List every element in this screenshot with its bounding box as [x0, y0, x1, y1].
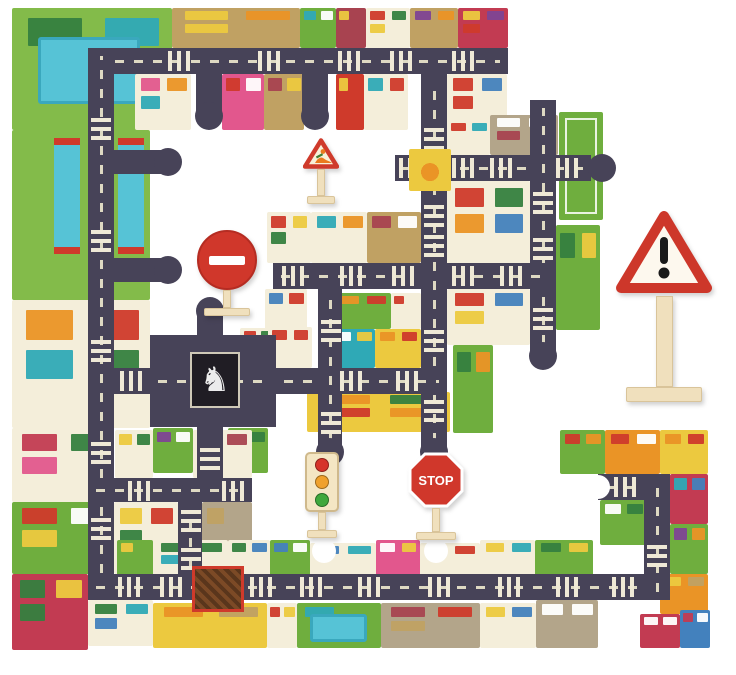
amber-lamp: [315, 475, 329, 489]
crosswalk: [340, 266, 362, 286]
puzzle-tile: [222, 74, 264, 130]
crosswalk: [612, 577, 634, 597]
puzzle-tile: [367, 212, 421, 263]
sign-base: [307, 530, 337, 538]
crosswalk: [118, 577, 140, 597]
crosswalk: [120, 371, 142, 391]
puzzle-tile: [117, 540, 153, 578]
jigsaw-tab: [154, 256, 182, 284]
crosswalk: [128, 481, 150, 501]
puzzle-tile: [381, 603, 480, 648]
no-entry-icon: [197, 230, 257, 290]
puzzle-tile: [12, 300, 150, 428]
jigsaw-tab: [154, 148, 182, 176]
puzzle-tile: [267, 603, 297, 648]
crosswalk: [396, 371, 418, 391]
puzzle-tile: [447, 181, 530, 265]
crosswalk: [200, 448, 220, 470]
crosswalk: [556, 158, 578, 178]
crosswalk: [222, 481, 244, 501]
puzzle-tile: [12, 574, 88, 650]
crosswalk: [556, 577, 578, 597]
sign-post: [317, 169, 325, 196]
puzzle-tile: [375, 329, 421, 368]
stop-label: STOP: [418, 473, 453, 488]
crosswalk: [258, 51, 280, 71]
crosswalk: [533, 238, 553, 260]
crosswalk: [424, 400, 444, 422]
puzzle-tile: [153, 428, 193, 473]
crosswalk: [452, 266, 474, 286]
puzzle-tile: [115, 430, 153, 478]
crosswalk: [340, 371, 362, 391]
crosswalk: [282, 266, 304, 286]
crosswalk: [160, 577, 182, 597]
green-lamp: [315, 493, 329, 507]
crosswalk: [91, 442, 111, 464]
puzzle-tile: [447, 120, 490, 155]
crosswalk: [91, 340, 111, 362]
puzzle-tile: [297, 603, 381, 648]
jigsaw-tab: [529, 342, 557, 370]
crosswalk: [498, 577, 520, 597]
puzzle-tile: [660, 430, 708, 474]
crosswalk: [533, 192, 553, 214]
crosswalk: [452, 158, 474, 178]
puzzle-tile: [264, 74, 304, 130]
roadworks-triangle-icon: [303, 138, 339, 169]
roadworks-sign: [303, 138, 339, 204]
puzzle-tile: [366, 8, 410, 48]
jigsaw-tab: [301, 102, 329, 130]
statue-tile: ♞: [190, 352, 240, 408]
puzzle-tile: [88, 600, 153, 646]
jigsaw-tab: [195, 102, 223, 130]
crosswalk: [533, 308, 553, 330]
crosswalk: [424, 205, 444, 227]
crosswalk: [181, 510, 201, 532]
puzzle-tile: [536, 600, 598, 648]
sign-post: [432, 508, 440, 532]
crosswalk: [91, 518, 111, 540]
warning-sign: [616, 210, 712, 402]
puzzle-tile: [410, 8, 458, 48]
warning-triangle-icon: [616, 210, 712, 296]
puzzle-tile: [391, 293, 421, 329]
crosswalk: [91, 230, 111, 252]
crosswalk: [338, 51, 360, 71]
stop-sign: STOP: [407, 452, 465, 540]
crosswalk: [490, 158, 512, 178]
crosswalk: [358, 577, 380, 597]
sign-base: [416, 532, 456, 540]
puzzle-tile: [300, 8, 336, 48]
puzzle-tile: [311, 212, 367, 263]
crosswalk: [300, 577, 322, 597]
sign-post: [656, 296, 673, 387]
crosswalk: [500, 266, 522, 286]
crosswalk: [250, 577, 272, 597]
sign-post: [318, 512, 326, 530]
puzzle-tile: [172, 8, 300, 48]
road-segment: [88, 48, 508, 74]
puzzle-tile: [556, 225, 600, 330]
crosswalk: [424, 330, 444, 352]
roadworks-patch: [192, 566, 244, 612]
sign-base: [307, 196, 335, 204]
crosswalk: [390, 51, 412, 71]
road-segment: [644, 474, 670, 600]
puzzle-tile: [605, 430, 660, 474]
puzzle-product-photo: ♞ STOP: [0, 0, 736, 675]
crosswalk: [321, 320, 341, 342]
puzzle-tile: [270, 540, 310, 578]
puzzle-tile: [670, 474, 708, 524]
puzzle-tile: [453, 345, 493, 433]
stop-octagon-icon: STOP: [408, 452, 464, 508]
puzzle-tile: [336, 8, 366, 48]
jigsaw-socket: [312, 539, 336, 563]
crosswalk: [91, 118, 111, 140]
crosswalk: [392, 266, 414, 286]
puzzle-tile: [376, 540, 420, 578]
puzzle-tile: [480, 540, 535, 578]
puzzle-tile: [680, 610, 710, 648]
puzzle-tile: [600, 500, 647, 545]
crosswalk: [452, 51, 474, 71]
puzzle-tile: [458, 8, 508, 48]
puzzle-tile: [480, 603, 536, 648]
puzzle-tile: [560, 430, 605, 474]
crosswalk: [647, 545, 667, 567]
jigsaw-socket: [424, 539, 448, 563]
no-entry-sign: [197, 230, 257, 316]
crosswalk: [321, 412, 341, 434]
crosswalk: [168, 51, 190, 71]
puzzle-tile: [670, 524, 708, 574]
crosswalk: [614, 477, 636, 497]
jigsaw-tab: [588, 154, 616, 182]
puzzle-tile: [267, 212, 311, 263]
crosswalk: [424, 128, 444, 150]
plaza-tile: [409, 149, 451, 191]
puzzle-tile: [336, 74, 364, 130]
crosswalk: [424, 235, 444, 257]
puzzle-tile: [640, 614, 680, 648]
puzzle-tile: [535, 540, 593, 578]
sign-base: [626, 387, 702, 402]
sign-base: [204, 308, 250, 316]
traffic-light-sign: [303, 452, 341, 538]
traffic-light-icon: [305, 452, 339, 512]
puzzle-tile: [447, 289, 530, 345]
puzzle-tile: [135, 74, 191, 130]
puzzle-tile: [364, 74, 408, 130]
crosswalk: [428, 577, 450, 597]
red-lamp: [315, 458, 329, 472]
jigsaw-socket: [586, 475, 610, 499]
sign-post: [223, 290, 231, 308]
